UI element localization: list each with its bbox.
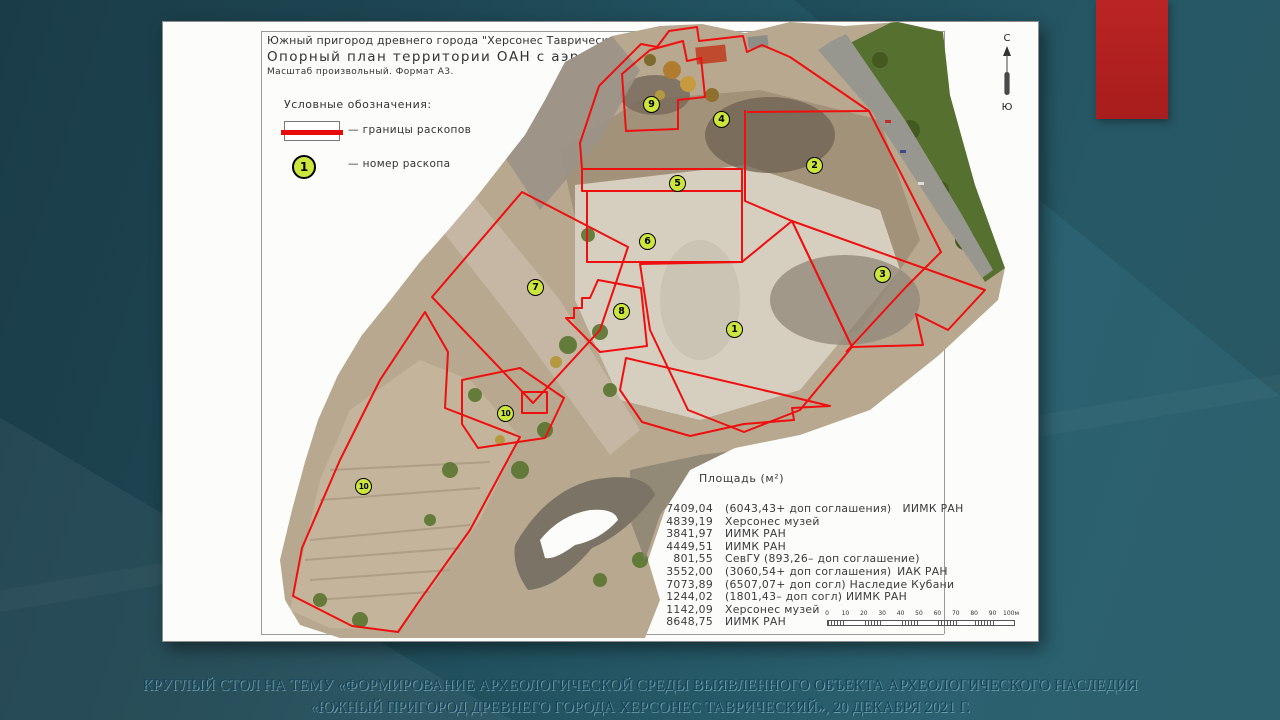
accent-rectangle — [1096, 0, 1168, 119]
table-row: 81244,02(1801,43– доп согл) ИИМК РАН — [631, 590, 964, 603]
table-row: 24839,19Херсонес музей — [631, 515, 964, 528]
frame-line — [261, 31, 262, 634]
map-title-block: Южный пригород древнего города "Херсонес… — [267, 34, 707, 77]
map-title-line2: Опорный план территории ОАН с аэрофотосъ… — [267, 49, 707, 65]
north-arrow-icon — [1000, 45, 1014, 101]
excavation-number-symbol: 1 — [292, 155, 316, 179]
red-line-symbol — [281, 130, 343, 135]
presentation-slide: Южный пригород древнего города "Херсонес… — [0, 0, 1280, 720]
legend-number-label: — номер раскопа — [348, 158, 450, 170]
scale-bar: 0102030405060708090100м — [827, 610, 1015, 628]
frame-line — [261, 31, 944, 32]
map-sheet: Южный пригород древнего города "Херсонес… — [162, 21, 1039, 642]
table-row: 17409,04(6043,43+ доп соглашения) ИИМК Р… — [631, 502, 964, 515]
scale-bar-labels: 0102030405060708090100м — [827, 610, 1015, 618]
map-title-line1: Южный пригород древнего города "Херсонес… — [267, 34, 707, 47]
compass-south-label: Ю — [989, 102, 1025, 113]
north-arrow: С Ю — [989, 33, 1025, 113]
table-row: 5801,55СевГУ (893,26– доп соглашение) — [631, 552, 964, 565]
legend-boundary-label: — границы раскопов — [348, 124, 471, 136]
excavation-boundary-swatch — [284, 121, 340, 141]
table-row: 63552,00(3060,54+ доп соглашения) ИАК РА… — [631, 565, 964, 578]
frame-line — [261, 634, 944, 635]
legend: Условные обозначения: — границы раскопов… — [284, 98, 432, 183]
compass-north-label: С — [989, 33, 1025, 44]
scale-bar-ruler — [827, 620, 1015, 626]
table-row: 44449,51ИИМК РАН — [631, 540, 964, 553]
map-title-line3: Масштаб произвольный. Формат А3. — [267, 67, 707, 77]
legend-item-boundary: — границы раскопов — [284, 119, 432, 147]
table-row: 33841,97ИИМК РАН — [631, 527, 964, 540]
area-table: Участок Площадь (м²) 17409,04(6043,43+ д… — [631, 472, 964, 628]
slide-caption: КРУГЛЫЙ СТОЛ НА ТЕМУ «ФОРМИРОВАНИЕ АРХЕО… — [0, 675, 1280, 719]
caption-line1: КРУГЛЫЙ СТОЛ НА ТЕМУ «ФОРМИРОВАНИЕ АРХЕО… — [0, 675, 1280, 697]
caption-line2: «ЮЖНЫЙ ПРИГОРОД ДРЕВНЕГО ГОРОДА ХЕРСОНЕС… — [0, 697, 1280, 719]
table-row: 77073,89(6507,07+ доп согл) Наследие Куб… — [631, 578, 964, 591]
area-table-header: Участок Площадь (м²) — [631, 472, 964, 485]
legend-item-number: 1 — номер раскопа — [284, 155, 432, 183]
legend-heading: Условные обозначения: — [284, 98, 432, 111]
